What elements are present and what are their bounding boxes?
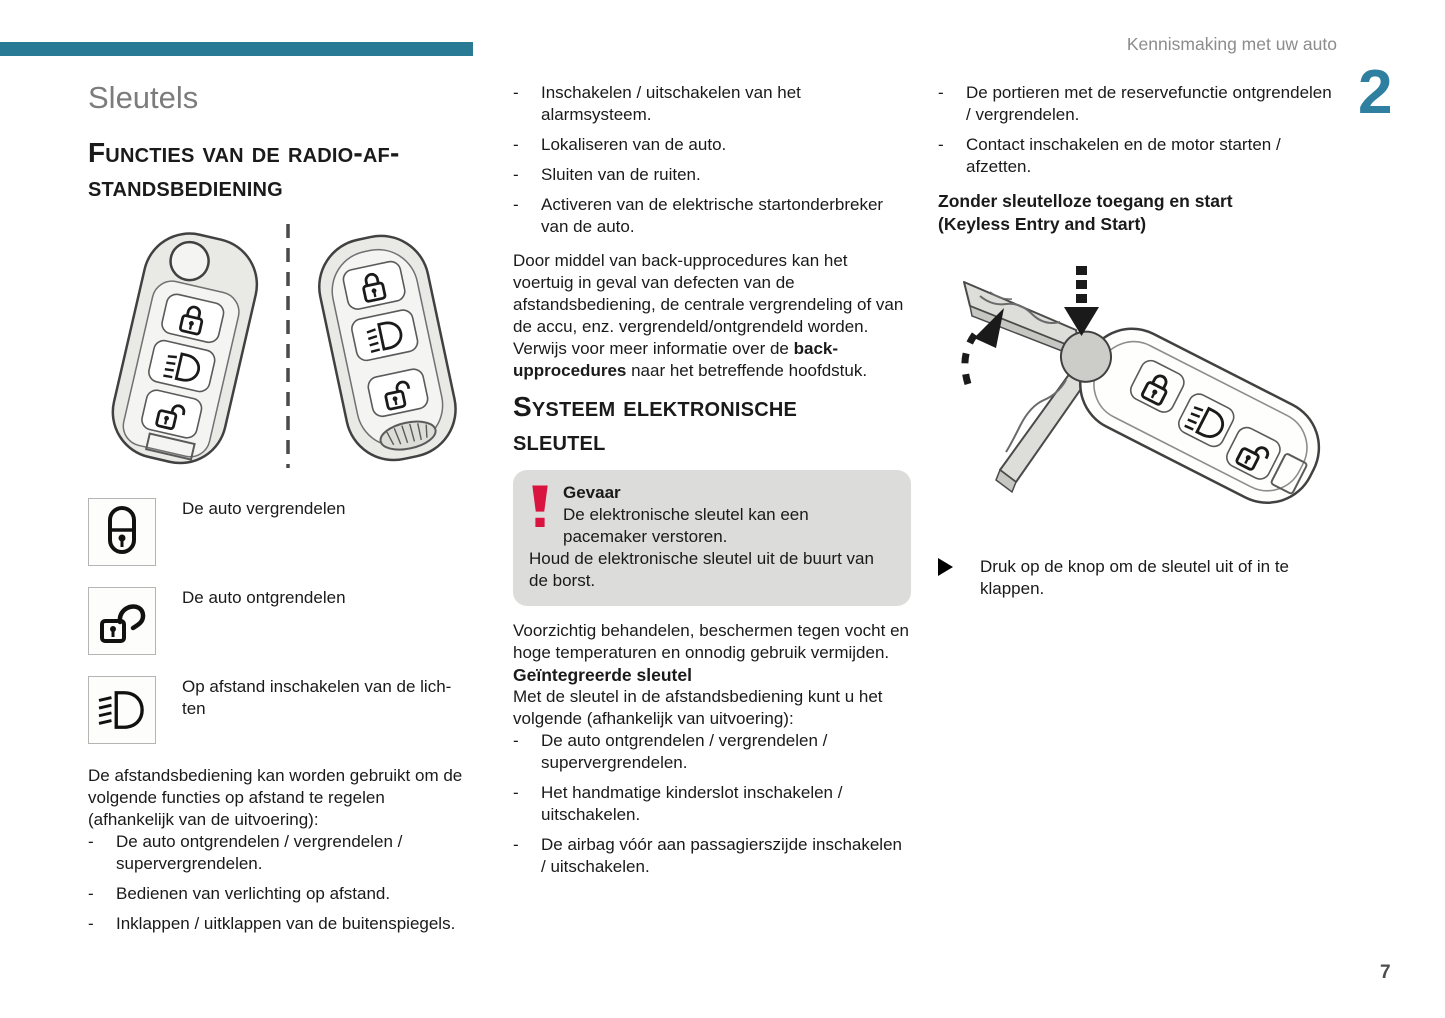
running-header: Kennismaking met uw auto [1127, 34, 1337, 55]
bullet-text: De auto ontgrendelen / vergrendelen / su… [116, 831, 486, 875]
flip-key-fob [104, 224, 266, 472]
warning-title: Gevaar [529, 482, 895, 504]
dash-marker: - [513, 730, 541, 774]
section-heading-remote-functions: Functies van de radio-af- standsbedienin… [88, 136, 486, 204]
page-title: Sleutels [88, 80, 486, 116]
list-item: - Sluiten van de ruiten. [513, 164, 911, 186]
dash-marker: - [513, 82, 541, 126]
key-blade-extended [996, 362, 1090, 492]
flip-key-fob [1040, 300, 1336, 519]
dash-marker: - [938, 134, 966, 178]
paragraph: De afstandsbediening kan worden gebruikt… [88, 765, 470, 831]
list-item: - Lokaliseren van de auto. [513, 134, 911, 156]
bullet-text: Inschakelen / uitschakelen van het alarm… [541, 82, 911, 126]
page-number: 7 [1380, 962, 1391, 984]
bullet-list: - De auto ontgrendelen / vergrendelen / … [513, 730, 911, 878]
remote-controls-illustration [88, 218, 486, 474]
chapter-color-bar [0, 42, 473, 56]
flip-key-illustration [938, 254, 1338, 544]
bullet-text: Inklappen / uitklappen van de buitenspie… [116, 913, 486, 935]
list-item: - De auto ontgrendelen / vergrendelen / … [513, 730, 911, 774]
key-function-row: De auto vergrendelen [88, 498, 486, 566]
smart-key-fob [310, 227, 464, 469]
lock-open-icon [88, 587, 156, 655]
dash-marker: - [513, 194, 541, 238]
list-item: - Contact inschakelen en de motor starte… [938, 134, 1340, 178]
manual-page: Kennismaking met uw auto 2 Sleutels Func… [0, 0, 1445, 1018]
key-function-row: De auto ontgrendelen [88, 587, 486, 655]
middle-column: - Inschakelen / uitschakelen van het ala… [513, 82, 911, 886]
bullet-text: De portieren met de reservefunctie ontgr… [966, 82, 1340, 126]
bullet-text: Bedienen van verlichting op afstand. [116, 883, 486, 905]
dash-marker: - [513, 164, 541, 186]
bullet-text: Het handmatige kinderslot inschakelen / … [541, 782, 911, 826]
icon-label: De auto vergrendelen [182, 498, 482, 566]
action-arrow-icon [938, 558, 968, 576]
headlight-beams-icon [88, 676, 156, 744]
list-item: - Bedienen van verlichting op afstand. [88, 883, 486, 905]
list-item: - De auto ontgrendelen / vergrendelen / … [88, 831, 486, 875]
paragraph-text: Door middel van back-upprocedures kan he… [513, 251, 903, 358]
dash-marker: - [513, 782, 541, 826]
icon-label: De auto ontgrendelen [182, 587, 482, 655]
subheading-integrated-key: Geïntegreerde sleutel [513, 664, 911, 686]
warning-text: Houd de elektronische sleutel uit de buu… [529, 548, 895, 592]
backup-paragraph: Door middel van back-upprocedures kan he… [513, 250, 907, 382]
dash-marker: - [938, 82, 966, 126]
key-function-row: Op afstand inschakelen van de lich- ten [88, 676, 486, 744]
list-item: - De portieren met de reservefunctie ont… [938, 82, 1340, 126]
action-instruction: Druk op de knop om de sleutel uit of in … [938, 556, 1340, 600]
dash-marker: - [513, 134, 541, 156]
bullet-list: - Inschakelen / uitschakelen van het ala… [513, 82, 911, 238]
bullet-list: - De portieren met de reservefunctie ont… [938, 82, 1340, 178]
bullet-text: Activeren van de elektrische startonderb… [541, 194, 911, 238]
press-arrow-icon [1064, 266, 1099, 336]
danger-box: Gevaar De elektronische sleutel kan een … [513, 470, 911, 606]
dash-marker: - [88, 883, 116, 905]
list-item: - Inklappen / uitklappen van de buitensp… [88, 913, 486, 935]
bullet-text: Contact inschakelen en de motor starten … [966, 134, 1340, 178]
list-item: - Activeren van de elektrische startonde… [513, 194, 911, 238]
bullet-text: De airbag vóór aan passagierszijde insch… [541, 834, 911, 878]
bullet-text: De auto ontgrendelen / vergrendelen / su… [541, 730, 911, 774]
section-heading-electronic-key: Systeem elektronische sleutel [513, 390, 911, 458]
subheading-keyless: Zonder sleutelloze toegang en start (Key… [938, 190, 1340, 236]
list-item: - De airbag vóór aan passagierszijde ins… [513, 834, 911, 878]
chapter-number: 2 [1358, 62, 1392, 124]
paragraph: Voorzichtig behandelen, beschermen tegen… [513, 620, 911, 664]
exclamation-icon [529, 484, 551, 527]
dash-marker: - [88, 913, 116, 935]
paragraph-text: naar het betreffende hoofdstuk. [626, 361, 867, 380]
paragraph: Met de sleutel in de afstandsbediening k… [513, 686, 911, 730]
warning-text: De elektronische sleutel kan een pacemak… [529, 504, 895, 548]
icon-label: Op afstand inschakelen van de lich- ten [182, 676, 482, 744]
bullet-text: Lokaliseren van de auto. [541, 134, 911, 156]
right-column: - De portieren met de reservefunctie ont… [938, 82, 1340, 600]
bullet-text: Sluiten van de ruiten. [541, 164, 911, 186]
list-item: - Het handmatige kinderslot inschakelen … [513, 782, 911, 826]
instruction-text: Druk op de knop om de sleutel uit of in … [980, 556, 1340, 600]
dash-marker: - [513, 834, 541, 878]
bullet-list: - De auto ontgrendelen / vergrendelen / … [88, 831, 486, 935]
list-item: - Inschakelen / uitschakelen van het ala… [513, 82, 911, 126]
dash-marker: - [88, 831, 116, 875]
lock-closed-icon [88, 498, 156, 566]
left-column: Sleutels Functies van de radio-af- stand… [88, 80, 486, 943]
